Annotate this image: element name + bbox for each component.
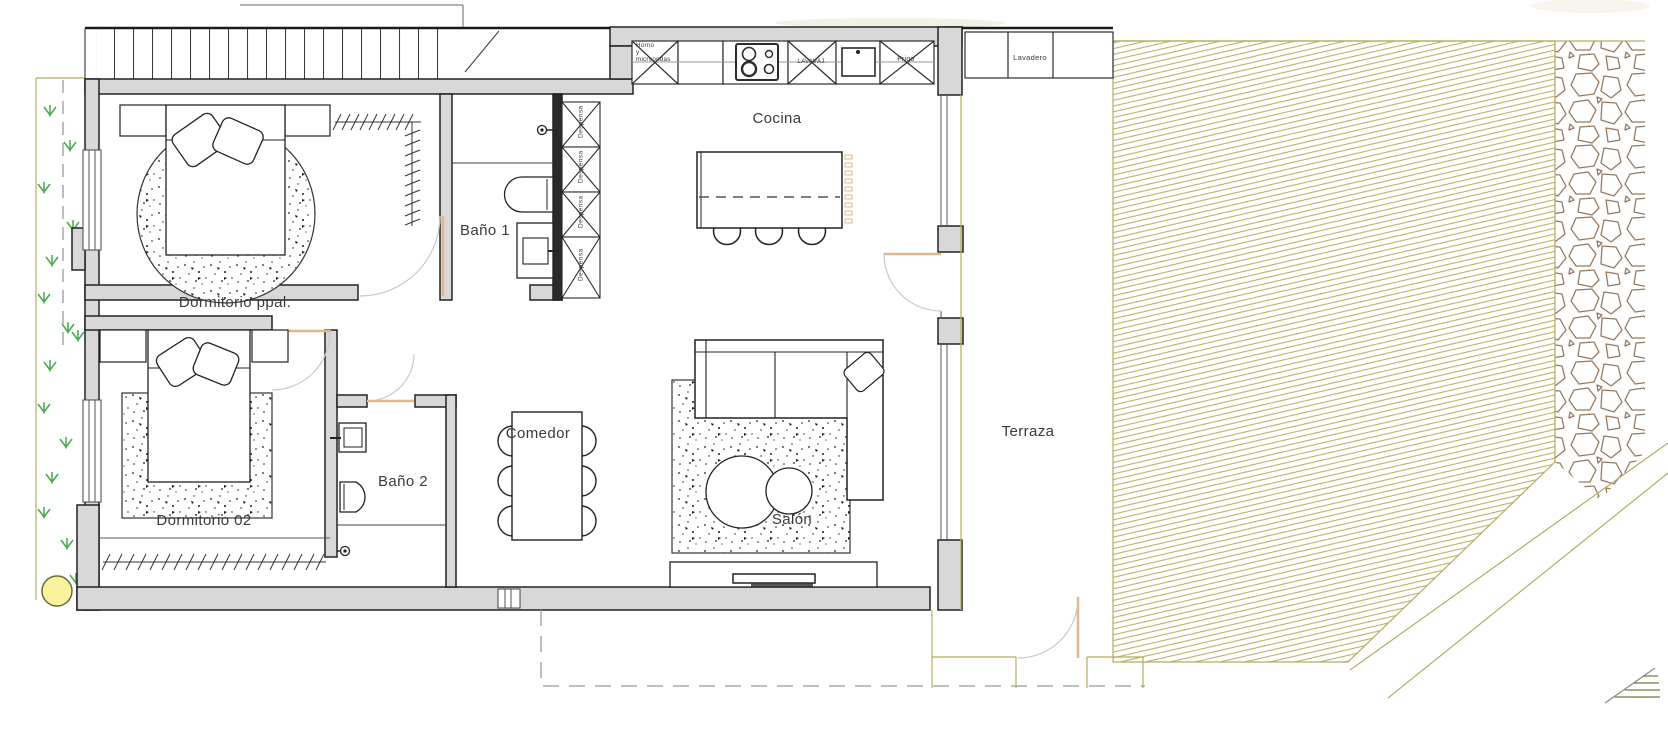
window-south — [498, 589, 520, 608]
tree-symbol — [42, 576, 72, 606]
room-label-salon: Salón — [742, 511, 842, 528]
floor-plan: Dormitorio ppal. Baño 1 Cocina Comedor B… — [0, 0, 1668, 746]
lawn-hatch — [1113, 41, 1555, 662]
fixture-label-horno: Horno y microondas — [636, 42, 680, 64]
kitchen-island — [697, 152, 852, 245]
door-terraza-east — [884, 254, 941, 311]
chair — [498, 466, 513, 496]
fixture-label-despensa: Despensa — [577, 243, 584, 287]
shower-head-icon — [337, 547, 350, 556]
cooktop-icon — [736, 44, 778, 80]
terrace-steps — [932, 610, 1143, 688]
room-label-dormitorio-ppal: Dormitorio ppal. — [150, 294, 320, 311]
staircase — [85, 5, 610, 79]
fixture-label-despensa: Despensa — [577, 145, 584, 189]
fixture-label-frigo: Frigo — [886, 56, 926, 64]
fixture-label-despensa: Despensa — [577, 190, 584, 234]
nightstand — [100, 330, 146, 362]
fixture-label-despensa: Despensa — [577, 100, 584, 144]
room-label-bano1: Baño 1 — [435, 222, 535, 239]
stone-path — [1555, 41, 1645, 500]
island-radiator-ticks — [845, 155, 852, 223]
closet-rail — [99, 538, 330, 570]
coffee-table — [766, 468, 812, 514]
room-label-cocina: Cocina — [715, 110, 839, 127]
window-west-1 — [83, 150, 101, 250]
kitchen-sink-icon — [842, 48, 875, 76]
chair — [498, 506, 513, 536]
top-foliage-shadow — [775, 0, 1650, 28]
closet-rail — [333, 114, 421, 226]
bano1-fixtures — [452, 126, 559, 279]
chair — [581, 506, 596, 536]
bed-double — [166, 105, 285, 255]
salon-furniture — [670, 340, 886, 587]
plant-symbol — [1605, 668, 1660, 703]
room-label-comedor: Comedor — [470, 425, 606, 442]
door-bano2 — [367, 354, 414, 401]
nightstand — [120, 105, 166, 136]
pillar — [938, 226, 963, 252]
pillar — [938, 318, 963, 344]
fixture-label-lavavajillas: LAVAVAJ. — [790, 58, 834, 65]
door-dormitorio-ppal — [360, 216, 443, 296]
bed-double — [148, 330, 250, 482]
garden-right — [1113, 41, 1668, 703]
room-label-bano2: Baño 2 — [353, 473, 453, 490]
chair — [581, 466, 596, 496]
dormitorio-ppal-furniture — [120, 105, 421, 303]
tv-console — [670, 562, 877, 587]
nightstand — [285, 105, 330, 136]
terrace-boundary — [541, 610, 1145, 688]
nightstand — [252, 330, 288, 362]
room-label-dormitorio02: Dormitorio 02 — [120, 512, 288, 529]
tv — [733, 574, 815, 583]
fixture-label-lavadero: Lavadero — [995, 54, 1065, 63]
toilet-icon — [505, 177, 554, 212]
gate-terraza-south — [1018, 597, 1078, 658]
window-west-2 — [83, 400, 101, 502]
dormitorio02-furniture — [99, 330, 330, 570]
room-label-terraza: Terraza — [963, 423, 1093, 440]
